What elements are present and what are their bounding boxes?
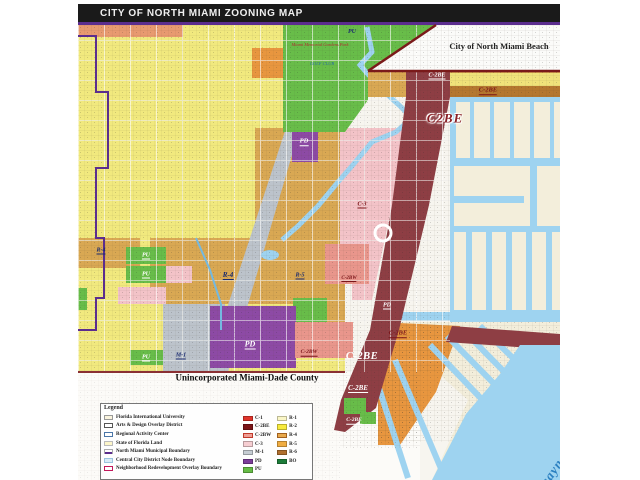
legend-zone-code: R-6 [289,450,297,455]
legend-zone-col-commercial: C-1C-2BEC-2BWC-3M-1PDPU [243,414,271,474]
legend-zone-code: R-5 [289,442,297,447]
map-zone-label: PD [383,303,391,310]
legend-item-label: Regional Activity Center [116,432,169,437]
island [472,232,486,310]
map-zone-label: R-5 [296,273,305,280]
map-canvas [0,0,640,480]
legend-zone-swatch [243,450,253,456]
legend-zone-item: C-2BE [243,423,271,432]
legend-zone-swatch [243,459,253,465]
legend-zone-swatch [277,424,287,430]
legend-zone-swatch [277,416,287,422]
legend-zone-swatch [277,459,287,465]
island [474,102,490,158]
legend-swatch-fiu [104,415,113,420]
map-zone-label: C-2BE [346,418,362,425]
map-zone-label: Unincorporated Miami-Dade County [176,374,319,383]
legend-zone-swatch [243,441,253,447]
legend-swatch-arts [104,423,113,428]
legend: Legend Florida International UniversityA… [100,403,313,480]
legend-zone-item: BO [277,457,297,466]
legend-zone-item: R-2 [277,423,297,432]
legend-zone-item: C-3 [243,440,271,449]
legend-zone-code: R-4 [289,433,297,438]
parcel-texture [450,25,560,97]
legend-zone-item: C-2BW [243,431,271,440]
map-zone-label: GOLF CLUB [310,62,334,67]
legend-zone-code: C-3 [255,442,263,447]
legend-zone-swatch [277,450,287,456]
legend-zone-item: R-6 [277,448,297,457]
island [512,232,526,310]
map-zone-label: R-4 [97,248,106,255]
legend-zone-code: C-1 [255,416,263,421]
map-zone-label: PD [245,341,256,350]
map-zone-label: C-2BE [428,73,445,80]
legend-zone-col-residential: R-1R-2R-4R-5R-6BO [277,414,297,474]
map-zone-label: C2BE [427,112,464,125]
legend-zone-swatch [277,433,287,439]
page-margin-right [560,0,640,480]
island [534,102,550,158]
legend-item-label: Neighborhood Redevelopment Overlay Bound… [116,466,222,471]
legend-item-label: Florida International University [116,415,185,420]
legend-zone-code: C-2BW [255,433,271,438]
legend-swatch-municipal [104,449,113,454]
municipal-boundary-top [78,22,560,25]
legend-zone-code: R-1 [289,416,297,421]
legend-zone-item: R-4 [277,431,297,440]
legend-swatch-rac [104,432,113,437]
island [492,232,506,310]
legend-zone-code: C-2BE [255,424,269,429]
legend-zone-code: M-1 [255,450,264,455]
legend-zone-item: R-1 [277,414,297,423]
legend-zone-swatch [277,441,287,447]
canal [530,166,537,226]
legend-zone-code: BO [289,459,296,464]
legend-zone-item: C-1 [243,414,271,423]
island [454,232,466,310]
island [514,102,530,158]
map-zone-label: PU [142,355,150,362]
map-zone-label: C-2BW [301,350,318,357]
legend-title: Legend [104,405,309,413]
map-zone-label: PU [348,29,356,35]
legend-item-label: Arts & Design Overlay District [116,423,182,428]
map-zone-label: C-2BW [341,276,356,282]
map-zone-label: C-3 [358,202,367,209]
legend-swatch-node [104,458,113,463]
legend-zone-swatch [243,424,253,430]
legend-zone-swatch [243,433,253,439]
map-title-bar: CITY OF NORTH MIAMI ZOONING MAP [78,4,560,22]
map-zone-label: Miami Memorial Gardens Park [292,43,349,48]
legend-zone-item: R-5 [277,440,297,449]
zoning-map-image: CITY OF NORTH MIAMI ZOONING MAP PUMiami … [0,0,640,480]
map-zone-label: C-2BE [389,330,407,338]
legend-zone-item: M-1 [243,448,271,457]
map-zone-label: PU [142,272,150,279]
map-title: CITY OF NORTH MIAMI ZOONING MAP [78,8,303,19]
parcel-texture [78,25,450,372]
map-zone-label: PU [142,253,150,260]
island [552,232,560,310]
legend-zone-code: PU [255,467,262,472]
legend-item-label: State of Florida Land [116,441,162,446]
legend-item-label: North Miami Municipal Boundary [116,449,190,454]
legend-zone-item: PU [243,466,271,475]
page-margin-left [0,0,78,480]
map-zone-label: C-2BE [348,385,368,393]
legend-swatch-state [104,441,113,446]
island [494,102,510,158]
legend-swatch-nro [104,466,113,471]
legend-zone-code: PD [255,459,262,464]
map-zone-label: C-2BE [479,87,497,95]
map-zone-label: City of North Miami Beach [449,42,548,51]
map-zone-label: M-1 [176,353,186,360]
map-zone-label: R-4 [223,272,234,280]
legend-zone-swatch [243,416,253,422]
canal [454,196,524,203]
legend-zone-swatch [243,467,253,473]
legend-item-label: Central City District Node Boundary [116,458,195,463]
island [532,232,546,310]
legend-zone-columns: C-1C-2BEC-2BWC-3M-1PDPU R-1R-2R-4R-5R-6B… [243,414,297,474]
legend-zone-item: PD [243,457,271,466]
map-zone-label: PD [300,138,309,146]
map-zone-label: C-2BE [346,352,378,363]
legend-zone-code: R-2 [289,424,297,429]
